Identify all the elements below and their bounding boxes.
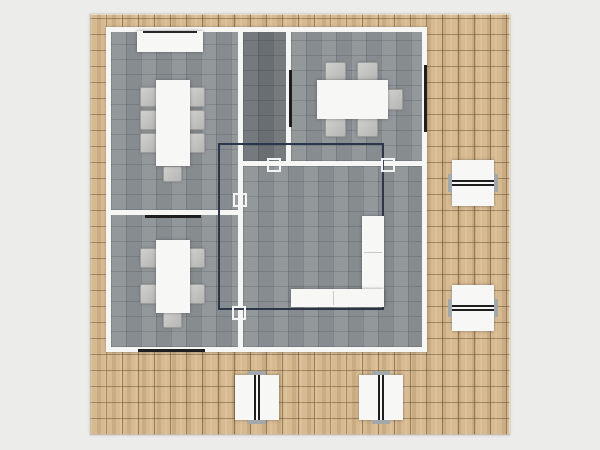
desk-divider: [452, 309, 494, 311]
chair[interactable]: [387, 89, 403, 110]
desk-side-tab: [494, 299, 498, 317]
door-opening-bottom-wall: [138, 349, 205, 352]
l-shaped-desk[interactable]: [291, 216, 384, 307]
chair[interactable]: [188, 248, 205, 268]
chair[interactable]: [140, 248, 157, 268]
door-symbol-left-wall-low[interactable]: [232, 306, 246, 320]
door-opening-storage-wall: [289, 70, 292, 127]
desk-side-tab: [448, 299, 452, 317]
chair[interactable]: [357, 62, 378, 81]
double-desk-right-lower[interactable]: [452, 285, 494, 331]
meeting-table-bottom-left[interactable]: [156, 240, 190, 313]
desk-divider: [258, 375, 260, 420]
desk-divider: [452, 184, 494, 186]
chair[interactable]: [188, 284, 205, 304]
chair[interactable]: [357, 118, 378, 137]
l-desk-seam: [333, 291, 334, 305]
chair[interactable]: [140, 284, 157, 304]
desk-side-tab: [372, 371, 390, 375]
desk-side-tab: [494, 174, 498, 192]
desk-divider: [452, 305, 494, 307]
chair[interactable]: [140, 133, 157, 153]
credenza-sideboard[interactable]: [137, 31, 203, 52]
door-opening-right-wall: [424, 65, 427, 132]
desk-side-tab: [248, 371, 266, 375]
l-desk-seam: [364, 252, 382, 253]
conference-table-top-left[interactable]: [156, 80, 190, 166]
double-desk-bottom-left[interactable]: [235, 375, 279, 420]
door-opening-left-rooms: [145, 215, 201, 218]
desk-side-tab: [248, 420, 266, 424]
desk-divider: [382, 375, 384, 420]
chair[interactable]: [140, 110, 157, 130]
chair[interactable]: [188, 133, 205, 153]
double-desk-bottom-right[interactable]: [359, 375, 403, 420]
chair[interactable]: [163, 312, 182, 328]
credenza-back-edge: [143, 31, 197, 33]
desk-divider: [254, 375, 256, 420]
floor-plan-canvas[interactable]: [0, 0, 600, 450]
chair[interactable]: [325, 118, 346, 137]
desk-divider: [452, 180, 494, 182]
room-storage-center[interactable]: [243, 32, 286, 161]
chair[interactable]: [140, 87, 157, 107]
chair[interactable]: [325, 62, 346, 81]
chair[interactable]: [188, 87, 205, 107]
chair[interactable]: [188, 110, 205, 130]
chair[interactable]: [163, 166, 182, 182]
double-desk-right-upper[interactable]: [452, 160, 494, 206]
door-symbol-left-wall[interactable]: [233, 193, 247, 207]
l-desk-horizontal-part: [291, 289, 384, 307]
door-symbol-center-left[interactable]: [267, 158, 281, 172]
meeting-table-top-right[interactable]: [317, 80, 388, 119]
desk-side-tab: [448, 174, 452, 192]
desk-side-tab: [372, 420, 390, 424]
desk-divider: [378, 375, 380, 420]
door-symbol-center-right[interactable]: [381, 158, 395, 172]
